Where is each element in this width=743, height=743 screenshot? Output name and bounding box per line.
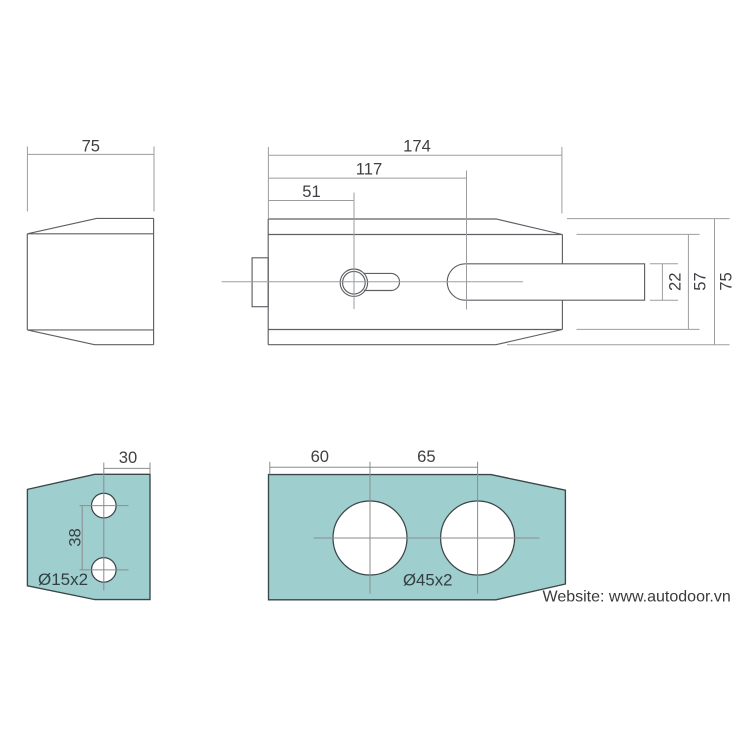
svg-text:117: 117 (356, 160, 382, 179)
svg-text:75: 75 (717, 272, 736, 290)
svg-text:65: 65 (417, 447, 435, 466)
svg-text:22: 22 (665, 273, 684, 291)
svg-text:Ø15x2: Ø15x2 (38, 570, 88, 589)
svg-text:60: 60 (311, 447, 329, 466)
svg-text:38: 38 (65, 528, 84, 546)
svg-text:51: 51 (302, 182, 320, 201)
svg-text:174: 174 (403, 137, 431, 156)
svg-text:57: 57 (691, 272, 710, 290)
svg-text:30: 30 (119, 448, 137, 467)
svg-text:75: 75 (82, 136, 100, 155)
svg-text:Website: www.autodoor.vn: Website: www.autodoor.vn (543, 589, 731, 606)
svg-text:Ø45x2: Ø45x2 (403, 571, 452, 590)
